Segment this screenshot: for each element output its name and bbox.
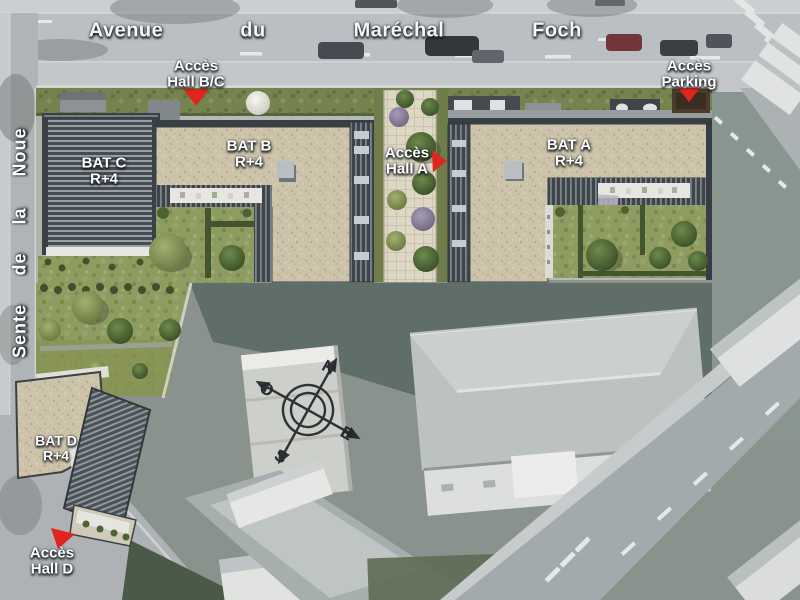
street-label-avenue: Maréchal	[354, 21, 445, 42]
access-line1: Accès	[167, 58, 225, 74]
building-floors: R+4	[547, 153, 591, 169]
central-walkway	[374, 88, 448, 282]
access-label-hall-d: Accès Hall D	[30, 545, 74, 577]
street-label-avenue: du	[240, 21, 265, 42]
access-label-hall-a: Accès Hall A	[385, 145, 429, 177]
access-line2: Hall B/C	[167, 74, 225, 90]
street-label-sente: Noue	[11, 128, 30, 177]
street-label-sente: de	[11, 252, 30, 275]
access-line2: Hall A	[385, 161, 429, 177]
building-label-bat-b: BAT B R+4	[227, 138, 272, 170]
building-name: BAT D	[35, 433, 77, 448]
building-name: BAT C	[82, 155, 127, 171]
building-floors: R+4	[35, 448, 77, 463]
street-label-sente: Sente	[11, 304, 30, 358]
access-line1: Accès	[661, 58, 716, 74]
garden-bat-bc	[149, 207, 255, 283]
building-bat-c	[36, 113, 160, 284]
building-name: BAT B	[227, 138, 272, 154]
street-label-avenue: Foch	[532, 21, 582, 42]
white-canopy-tree	[246, 91, 270, 115]
building-name: BAT A	[547, 137, 591, 153]
access-line2: Hall D	[30, 561, 74, 577]
building-floors: R+4	[82, 171, 127, 187]
access-line1: Accès	[385, 145, 429, 161]
building-floors: R+4	[227, 154, 272, 170]
street-label-sente: la	[11, 207, 30, 224]
access-line2: Parking	[661, 74, 716, 90]
access-line1: Accès	[30, 545, 74, 561]
garden-bat-a	[545, 205, 708, 278]
street-label-avenue: Avenue	[89, 21, 164, 42]
building-label-bat-d: BAT D R+4	[35, 433, 77, 462]
building-label-bat-c: BAT C R+4	[82, 155, 127, 187]
access-label-parking: Accès Parking	[661, 58, 716, 90]
site-plan-map: N O E S Avenue du Maréchal Foch Noue la …	[0, 0, 800, 600]
access-label-hall-bc: Accès Hall B/C	[167, 58, 225, 90]
building-label-bat-a: BAT A R+4	[547, 137, 591, 169]
